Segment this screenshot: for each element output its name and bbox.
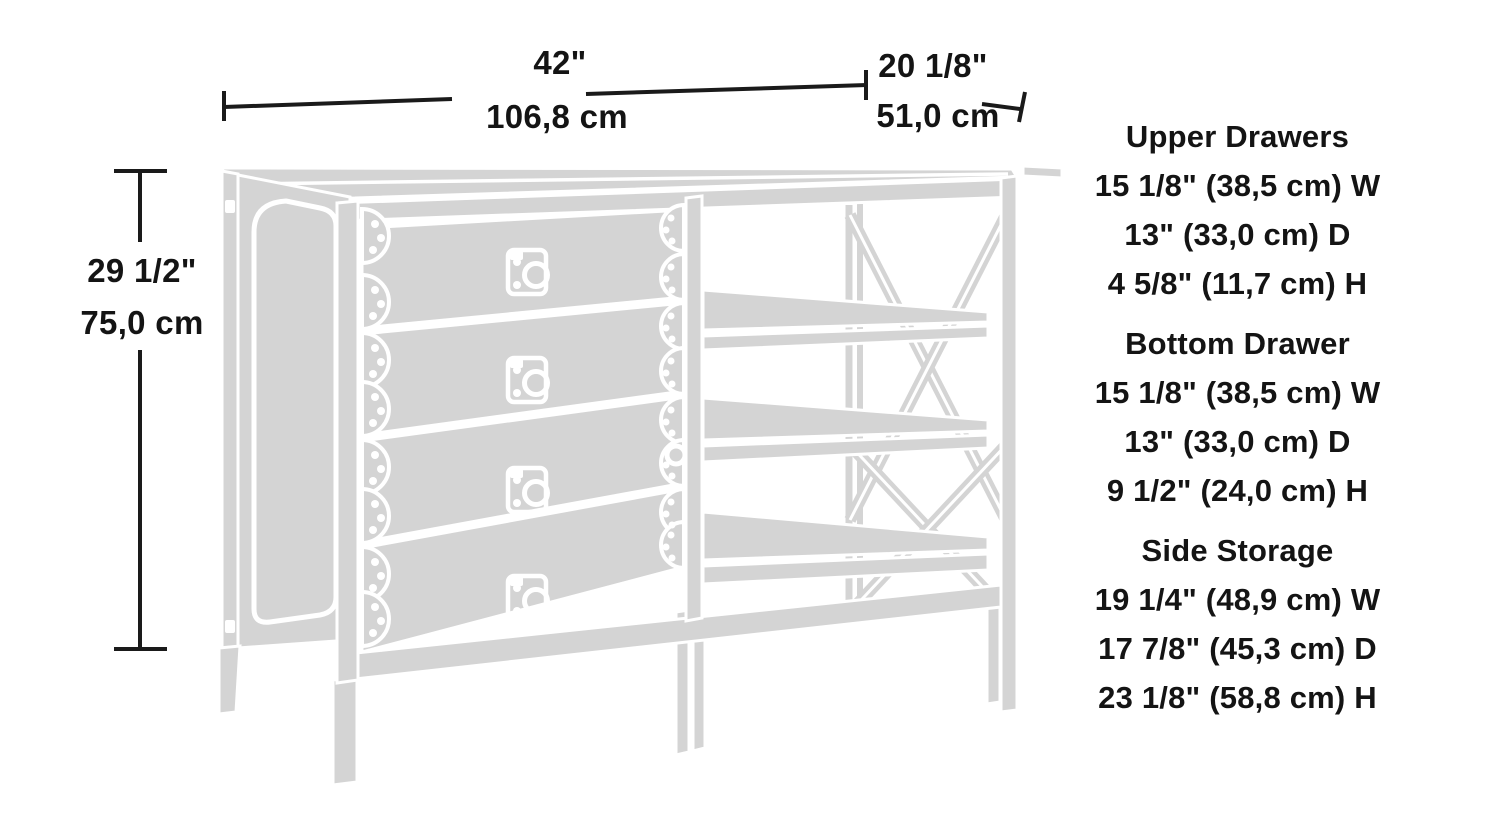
spec-line: 15 1/8" (38,5 cm) W xyxy=(1060,161,1415,210)
leg-back-left xyxy=(219,646,240,714)
spec-title: Side Storage xyxy=(1060,526,1415,575)
depth-dimension-cm: 51,0 cm xyxy=(876,97,999,135)
side-panel xyxy=(222,171,350,650)
spec-title: Bottom Drawer xyxy=(1060,319,1415,368)
spec-group-upper-drawers: Upper Drawers 15 1/8" (38,5 cm) W 13" (3… xyxy=(1060,112,1415,308)
height-dimension-inches: 29 1/2" xyxy=(87,252,197,290)
width-dimension-cm: 106,8 cm xyxy=(486,98,628,136)
dimension-diagram-page: 42" 106,8 cm 20 1/8" 51,0 cm 29 1/2" 75,… xyxy=(0,0,1500,822)
post-left xyxy=(337,201,358,683)
spec-line: 13" (33,0 cm) D xyxy=(1060,210,1415,259)
spec-line: 17 7/8" (45,3 cm) D xyxy=(1060,624,1415,673)
width-dimension-inches: 42" xyxy=(533,44,586,82)
spec-line: 15 1/8" (38,5 cm) W xyxy=(1060,368,1415,417)
spec-block: Upper Drawers 15 1/8" (38,5 cm) W 13" (3… xyxy=(1060,112,1415,733)
post-middle xyxy=(686,196,702,621)
grommet-ring xyxy=(667,446,685,464)
spec-line: 9 1/2" (24,0 cm) H xyxy=(1060,466,1415,515)
spec-title: Upper Drawers xyxy=(1060,112,1415,161)
height-dimension-line xyxy=(114,171,167,649)
spec-group-side-storage: Side Storage 19 1/4" (48,9 cm) W 17 7/8"… xyxy=(1060,526,1415,722)
spec-group-bottom-drawer: Bottom Drawer 15 1/8" (38,5 cm) W 13" (3… xyxy=(1060,319,1415,515)
spec-line: 19 1/4" (48,9 cm) W xyxy=(1060,575,1415,624)
post-right xyxy=(1001,176,1017,712)
top-back-rail-stub xyxy=(1023,166,1062,178)
spec-line: 23 1/8" (58,8 cm) H xyxy=(1060,673,1415,722)
height-dimension-cm: 75,0 cm xyxy=(80,304,203,342)
spec-line: 4 5/8" (11,7 cm) H xyxy=(1060,259,1415,308)
depth-dimension-inches: 20 1/8" xyxy=(878,47,988,85)
leg-front-left xyxy=(333,678,357,785)
side-storage-shelves xyxy=(703,290,988,584)
spec-line: 13" (33,0 cm) D xyxy=(1060,417,1415,466)
leg-back-right xyxy=(987,597,1000,704)
